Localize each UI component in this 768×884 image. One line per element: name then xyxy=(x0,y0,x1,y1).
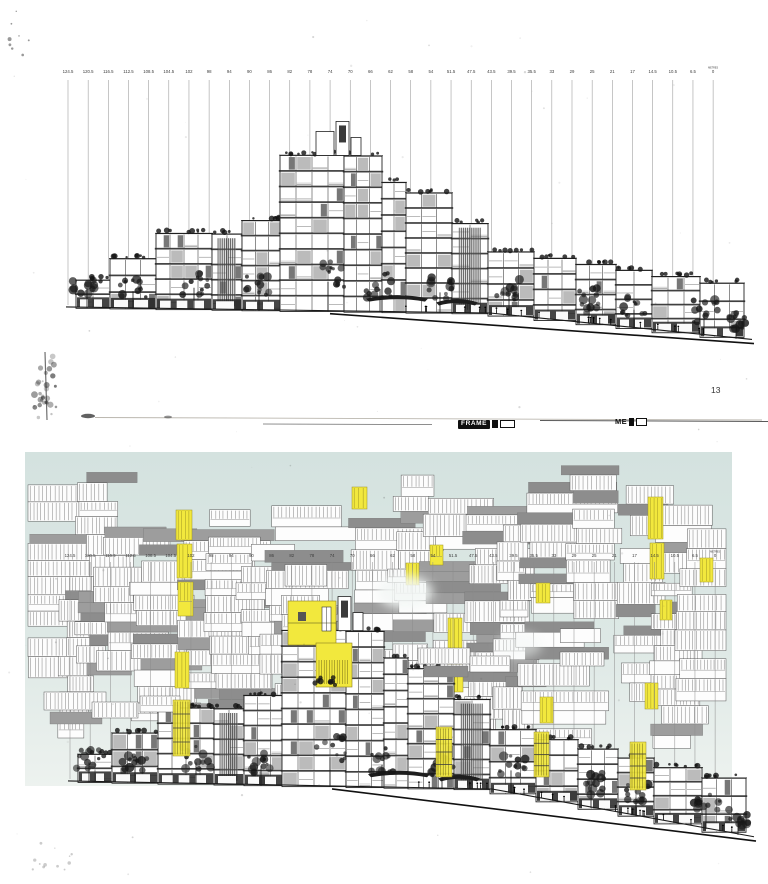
scale-label: 112.5 xyxy=(125,553,136,558)
cloud-patch xyxy=(498,632,542,658)
module-white xyxy=(680,659,726,679)
scale-label: 6.5 xyxy=(692,553,699,558)
module-gray xyxy=(393,620,438,632)
scale-label: 74 xyxy=(330,553,335,558)
scale-label: 116.5 xyxy=(103,69,114,74)
module-white xyxy=(500,600,528,617)
scale-label: 74 xyxy=(328,69,333,74)
scale-label: 120.5 xyxy=(85,553,96,558)
scale-label: 25 xyxy=(590,69,595,74)
building-elevation xyxy=(66,121,754,343)
scale-label: 17 xyxy=(630,69,635,74)
module-white xyxy=(566,560,610,582)
scale-label: 98 xyxy=(209,553,214,558)
module-white xyxy=(676,611,726,630)
scale-label: 21 xyxy=(612,553,617,558)
scale-label: 47.5 xyxy=(469,553,478,558)
scale-label: 78 xyxy=(308,69,313,74)
scale-label: 112.5 xyxy=(123,69,134,74)
scale-label: 104.5 xyxy=(163,69,174,74)
module-white xyxy=(216,673,272,689)
scale-label: 35.5 xyxy=(527,69,536,74)
scale-label: 10.5 xyxy=(671,553,680,558)
module-gray xyxy=(424,666,468,677)
scale-label: 120.5 xyxy=(83,69,94,74)
scale-label: 10.5 xyxy=(669,69,678,74)
scale-label: 86 xyxy=(267,69,272,74)
metre-scale-bar: ME xyxy=(615,418,647,426)
scale-label: 82 xyxy=(287,69,292,74)
module-white xyxy=(655,505,712,525)
scale-label: 86 xyxy=(269,553,274,558)
scale-label: 108.5 xyxy=(143,69,154,74)
scale-label: 62 xyxy=(388,69,393,74)
scale-label: 62 xyxy=(390,553,395,558)
module-white xyxy=(470,656,510,672)
scale-label: 116.5 xyxy=(105,553,116,558)
module-gray xyxy=(30,534,90,543)
scale-label: 43.5 xyxy=(487,69,496,74)
module-white xyxy=(573,509,615,528)
scale-label: 29 xyxy=(570,69,575,74)
scale-label: 102 xyxy=(185,69,193,74)
module-white xyxy=(653,736,691,749)
frame-scale-filled-box xyxy=(492,420,498,428)
scale-label: 14.5 xyxy=(650,553,659,558)
module-gray xyxy=(616,604,655,617)
metre-scale-label: ME xyxy=(615,418,627,426)
scale-label: 66 xyxy=(370,553,375,558)
scale-label: 33 xyxy=(551,553,556,558)
module-white xyxy=(401,475,434,496)
scale-label: 94 xyxy=(229,553,234,558)
scale-label: 102 xyxy=(187,553,195,558)
scale-label: 6.5 xyxy=(690,69,697,74)
scale-label: 39.5 xyxy=(509,553,518,558)
module-white xyxy=(68,676,94,692)
module-white xyxy=(560,629,600,643)
scale-label: 33 xyxy=(549,69,554,74)
scale-label: 39.5 xyxy=(507,69,516,74)
scale-label: 51.5 xyxy=(449,553,458,558)
scale-label: 29 xyxy=(572,553,577,558)
module-gray xyxy=(561,466,619,475)
scale-label: 98 xyxy=(207,69,212,74)
module-gray xyxy=(87,472,138,482)
scale-label: 108.5 xyxy=(145,553,156,558)
frame-scale-label: FRAME xyxy=(458,420,490,429)
metre-scale-open-box xyxy=(636,418,647,426)
sheet-number: 13 xyxy=(711,385,720,395)
scale-label: 58 xyxy=(408,69,413,74)
scale-label: 35.5 xyxy=(529,553,538,558)
scale-label: 0 xyxy=(712,69,715,74)
metres-caption: METRES xyxy=(710,551,720,554)
module-white xyxy=(677,594,726,611)
scale-label: 25 xyxy=(592,553,597,558)
scale-label: 66 xyxy=(368,69,373,74)
scale-label: 58 xyxy=(410,553,415,558)
metres-caption: METRES xyxy=(708,67,718,70)
elevation-artwork: 124.5120.5116.5112.5108.5104.51029894908… xyxy=(0,0,768,884)
scanned-drawing-page: { "labels": { "frame": "FRAME", "me": "M… xyxy=(0,0,768,884)
scale-label: 54 xyxy=(430,553,435,558)
scale-label: 78 xyxy=(310,553,315,558)
scale-label: 90 xyxy=(247,69,252,74)
scale-label: 70 xyxy=(350,553,355,558)
module-white xyxy=(676,678,726,700)
scale-label: 90 xyxy=(249,553,254,558)
module-white xyxy=(574,600,619,618)
module-white xyxy=(576,528,621,543)
scale-label: 104.5 xyxy=(165,553,176,558)
scale-label: 14.5 xyxy=(648,69,657,74)
frame-scale-bar: FRAME xyxy=(458,420,515,429)
module-gray xyxy=(573,491,618,504)
scale-label: 21 xyxy=(610,69,615,74)
module-white xyxy=(209,636,252,654)
scale-label: 124.5 xyxy=(63,69,74,74)
module-white xyxy=(522,711,606,724)
metre-scale-filled-box xyxy=(629,418,634,426)
scale-label: 94 xyxy=(227,69,232,74)
scale-label: 124.5 xyxy=(65,553,76,558)
scale-label: 43.5 xyxy=(489,553,498,558)
module-gray xyxy=(418,572,477,582)
scale-label: 54 xyxy=(428,69,433,74)
module-white xyxy=(521,691,608,711)
module-white xyxy=(570,475,616,491)
module-white xyxy=(77,483,107,502)
module-yellow xyxy=(645,683,658,709)
module-white xyxy=(275,527,357,541)
frame-scale-open-box xyxy=(500,420,515,428)
scale-label: 51.5 xyxy=(447,69,456,74)
module-white xyxy=(28,561,99,577)
scale-label: 82 xyxy=(289,553,294,558)
cloud-patch xyxy=(377,575,433,609)
module-white xyxy=(212,654,260,673)
scale-label: 17 xyxy=(632,553,637,558)
scale-label: 70 xyxy=(348,69,353,74)
scale-label: 47.5 xyxy=(467,69,476,74)
